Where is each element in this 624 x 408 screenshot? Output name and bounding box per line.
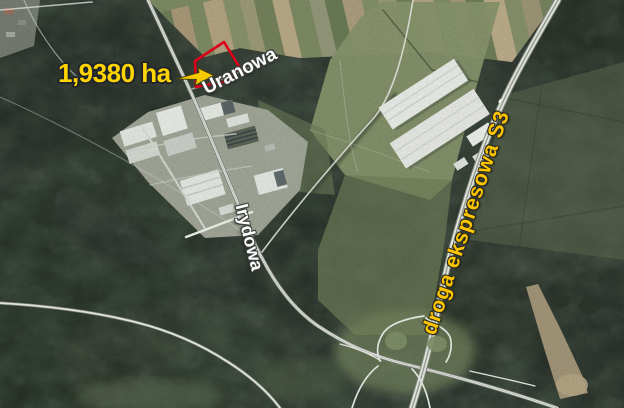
parcel-area-label: 1,9380 ha bbox=[58, 60, 171, 86]
aerial-map: 1,9380 ha Uranowa Irydowa droga ekspreso… bbox=[0, 0, 624, 408]
